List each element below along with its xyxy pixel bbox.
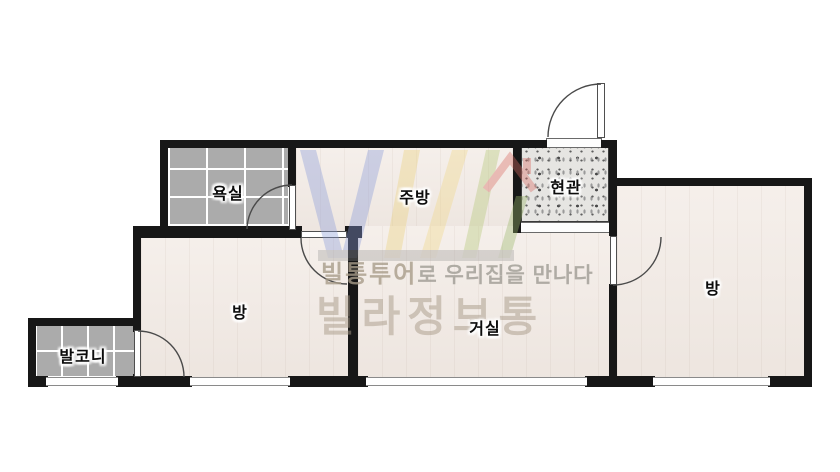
entrance-bottom-threshold xyxy=(514,222,614,233)
floor-plan-canvas: 빌통투어로 우리집을 만나다 빌라정보통 욕실 주방 현관 방 방 거실 발코니 xyxy=(0,0,840,472)
right-room-window xyxy=(653,377,770,386)
kitchen-label: 주방 xyxy=(399,184,430,208)
wall-bathroom-left xyxy=(160,140,168,232)
wall-bottom-right xyxy=(768,376,812,387)
wall-top-main xyxy=(160,140,547,148)
living-window xyxy=(366,377,587,386)
left-room-window xyxy=(190,377,290,386)
left-room-label: 방 xyxy=(232,299,248,323)
watermark-brand-large: 빌라정보통 xyxy=(316,283,544,344)
entrance-label: 현관 xyxy=(550,174,581,198)
balcony-door-leaf xyxy=(134,330,141,377)
wall-living-rightroom-upper xyxy=(609,140,617,236)
entrance-door-leaf xyxy=(597,83,605,138)
wall-rightroom-top xyxy=(609,178,812,186)
wall-bottom-mid xyxy=(288,376,368,387)
living-label: 거실 xyxy=(469,315,500,339)
wall-living-rightroom-lower xyxy=(609,284,617,387)
wall-bottom-balcony-b xyxy=(116,376,192,387)
left-room-door-leaf xyxy=(301,231,347,238)
balcony-label: 발코니 xyxy=(59,343,106,367)
wall-mid-horizontal xyxy=(133,226,302,238)
wall-left-outer xyxy=(133,226,141,332)
bathroom-label: 욕실 xyxy=(212,180,243,204)
wall-mid-corner xyxy=(345,226,362,238)
wall-right-outer xyxy=(804,178,812,387)
wall-bottom-living xyxy=(585,376,655,387)
right-room-door-leaf xyxy=(610,236,617,285)
wall-balcony-top xyxy=(28,318,141,326)
entrance-door-arc xyxy=(548,84,601,137)
right-room-label: 방 xyxy=(705,275,721,299)
balcony-window xyxy=(46,377,118,386)
wall-entrance-left xyxy=(513,140,521,233)
wall-bottom-balcony-a xyxy=(28,376,48,387)
entrance-top-threshold xyxy=(546,138,602,148)
wall-bathroom-right xyxy=(288,140,296,187)
bathroom-door-leaf xyxy=(289,185,296,230)
